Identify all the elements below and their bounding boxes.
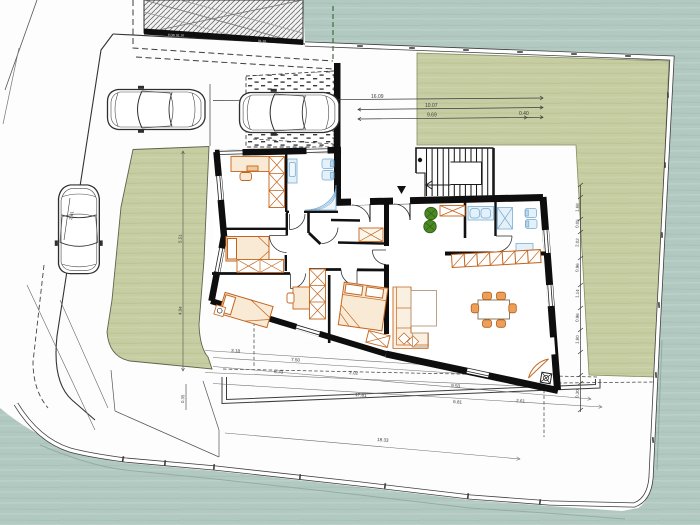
svg-text:5.51: 5.51 bbox=[178, 234, 183, 243]
svg-text:16.09: 16.09 bbox=[371, 94, 384, 100]
svg-text:0.35: 0.35 bbox=[180, 394, 185, 403]
svg-text:6.81: 6.81 bbox=[453, 399, 463, 405]
svg-text:4.04: 4.04 bbox=[178, 306, 183, 315]
svg-text:0.30: 0.30 bbox=[575, 389, 580, 398]
svg-text:2.02: 2.02 bbox=[575, 238, 580, 247]
svg-text:0.96: 0.96 bbox=[575, 313, 580, 322]
svg-text:6.70: 6.70 bbox=[274, 369, 284, 375]
svg-text:3.18: 3.18 bbox=[231, 348, 241, 354]
svg-text:2.61: 2.61 bbox=[516, 398, 526, 404]
svg-text:18.33: 18.33 bbox=[377, 437, 389, 443]
svg-text:2.02: 2.02 bbox=[349, 370, 359, 376]
svg-text:17.81: 17.81 bbox=[355, 392, 367, 398]
svg-text:9.50: 9.50 bbox=[451, 383, 461, 389]
svg-text:F.OK 91.10: F.OK 91.10 bbox=[168, 33, 184, 38]
svg-text:0.40: 0.40 bbox=[519, 111, 529, 117]
svg-text:0.05: 0.05 bbox=[575, 219, 580, 228]
svg-text:1.68: 1.68 bbox=[575, 203, 580, 212]
svg-text:9.69: 9.69 bbox=[427, 113, 437, 119]
svg-text:10.07: 10.07 bbox=[425, 103, 438, 109]
svg-text:0.96: 0.96 bbox=[575, 263, 580, 272]
svg-text:1.14: 1.14 bbox=[575, 289, 580, 298]
svg-text:91.10: 91.10 bbox=[258, 39, 266, 43]
svg-text:1.60: 1.60 bbox=[575, 335, 580, 344]
svg-text:7.50: 7.50 bbox=[291, 357, 301, 363]
